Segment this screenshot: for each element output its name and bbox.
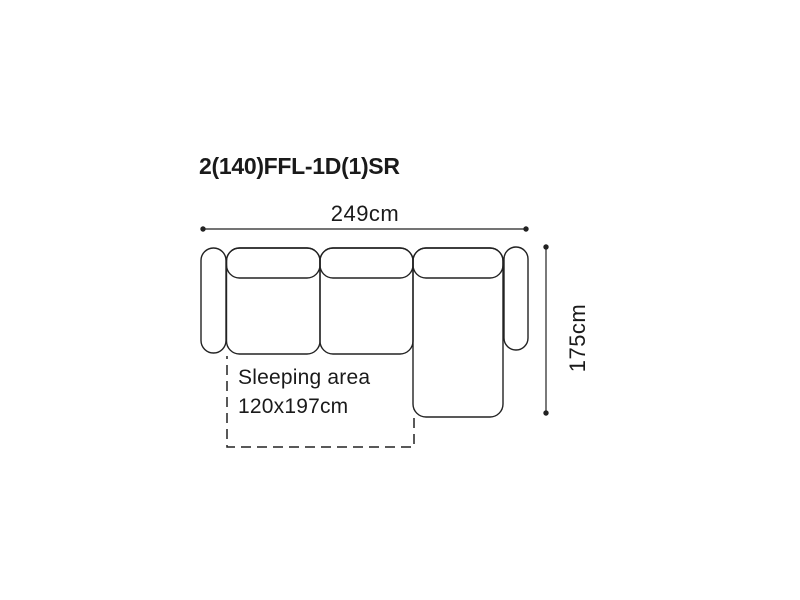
height-dimension-label: 175cm xyxy=(566,298,590,378)
height-dimension-endpoint-bottom xyxy=(543,410,548,415)
sofa-dimension-diagram: 2(140)FFL-1D(1)SR 249cm xyxy=(0,0,800,600)
left-armrest xyxy=(201,248,226,353)
chaise-section xyxy=(413,248,503,417)
backrest-cushion-chaise xyxy=(413,248,503,278)
seat-section-middle xyxy=(320,248,413,354)
backrest-cushion-middle xyxy=(320,248,413,278)
width-dimension-endpoint-right xyxy=(523,226,528,231)
height-dimension-endpoint-top xyxy=(543,244,548,249)
sofa-top-view-drawing xyxy=(0,0,800,600)
width-dimension-endpoint-left xyxy=(200,226,205,231)
sleeping-area-size-text: 120x197cm xyxy=(238,392,370,421)
sleeping-area-label-text: Sleeping area xyxy=(238,363,370,392)
sleeping-area-label: Sleeping area 120x197cm xyxy=(238,363,370,421)
right-armrest xyxy=(504,247,528,350)
seat-section-left xyxy=(227,248,321,354)
backrest-cushion-left xyxy=(227,248,321,278)
